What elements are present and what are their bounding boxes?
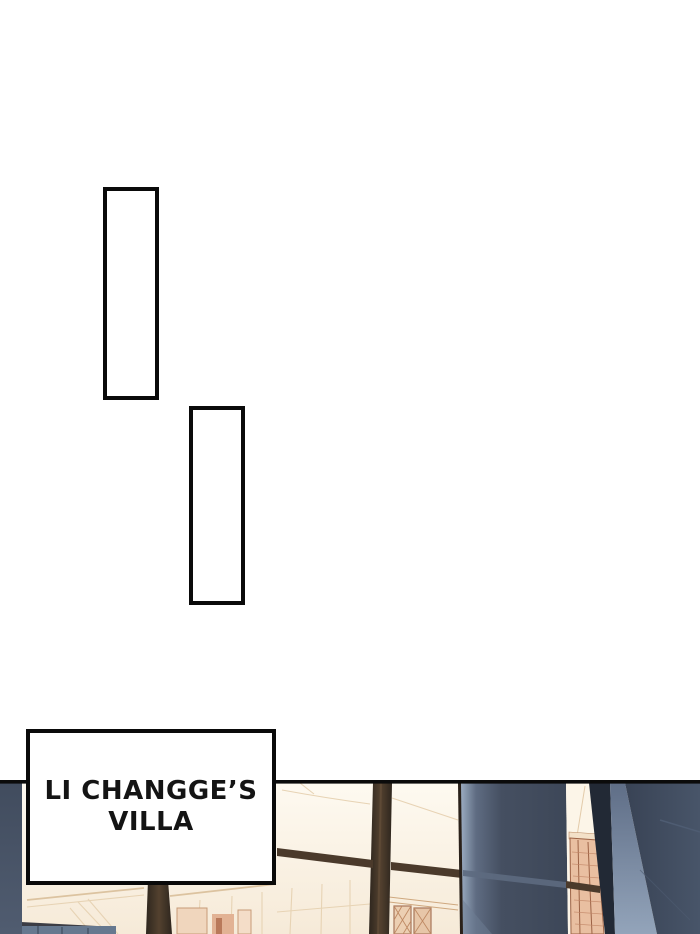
caption-line-1: LI CHANGGE’S: [44, 776, 257, 807]
wall-band-center: [458, 783, 568, 934]
wall-band-left: [0, 783, 22, 934]
speech-balloon-1: [103, 187, 159, 400]
caption-text: LI CHANGGE’S VILLA: [44, 776, 257, 837]
caption-line-2: VILLA: [44, 807, 257, 838]
window-post-center: [369, 783, 392, 934]
comic-page: LI CHANGGE’S VILLA: [0, 0, 700, 934]
caption-box: LI CHANGGE’S VILLA: [26, 729, 276, 885]
speech-balloon-2: [189, 406, 245, 605]
window-post-left: [146, 880, 172, 934]
